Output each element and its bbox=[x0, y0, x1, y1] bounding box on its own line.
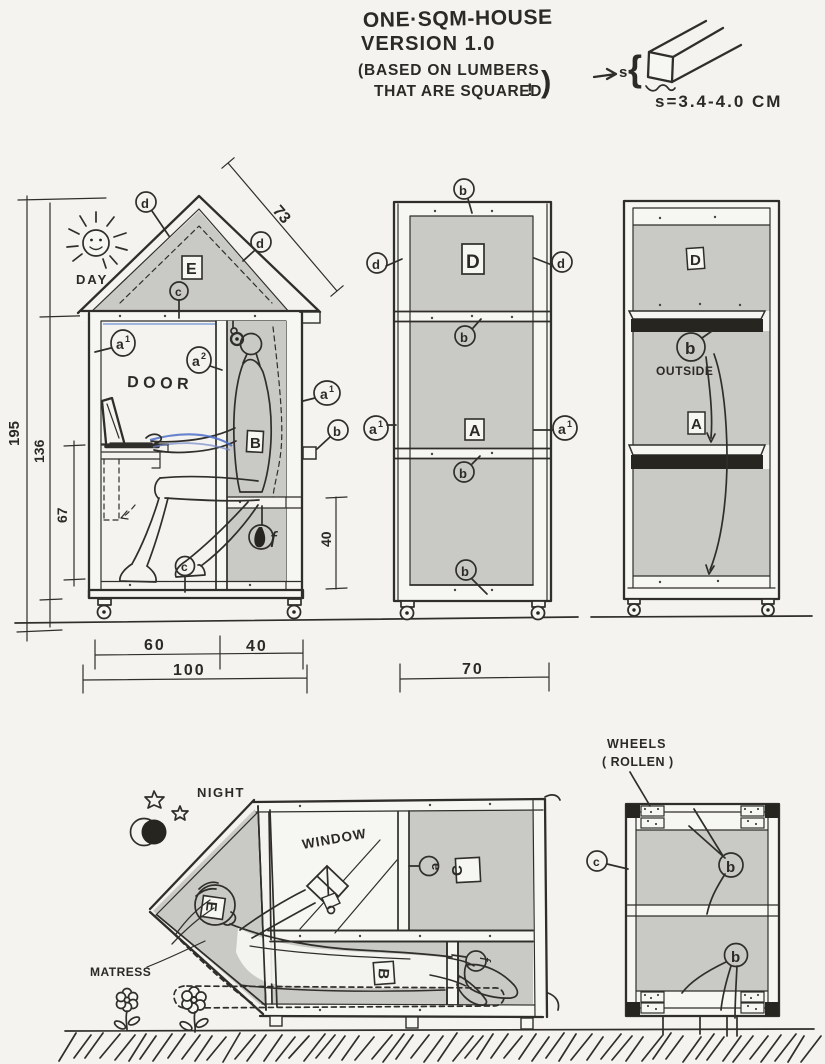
svg-text:c: c bbox=[175, 285, 182, 299]
svg-text:1: 1 bbox=[329, 384, 334, 394]
svg-text:a: a bbox=[320, 386, 328, 402]
svg-text:1: 1 bbox=[125, 334, 130, 344]
svg-text:s: s bbox=[619, 64, 627, 81]
svg-text:{: { bbox=[628, 48, 642, 89]
svg-text:e: e bbox=[429, 863, 444, 870]
svg-text:100: 100 bbox=[173, 662, 206, 679]
svg-text:( ROLLEN ): ( ROLLEN ) bbox=[602, 755, 674, 769]
svg-text:B: B bbox=[250, 435, 261, 452]
svg-text:a: a bbox=[369, 421, 377, 437]
svg-text:C: C bbox=[449, 865, 466, 876]
svg-text:!: ! bbox=[527, 80, 533, 99]
svg-text:a: a bbox=[192, 353, 200, 369]
svg-text:D: D bbox=[690, 252, 701, 269]
svg-text:VERSION 1.0: VERSION 1.0 bbox=[361, 33, 495, 55]
svg-text:A: A bbox=[469, 423, 481, 440]
svg-text:E: E bbox=[186, 261, 197, 278]
svg-text:60: 60 bbox=[144, 637, 166, 654]
svg-text:d: d bbox=[557, 256, 565, 271]
svg-text:d: d bbox=[141, 196, 149, 211]
svg-text:40: 40 bbox=[246, 638, 268, 655]
svg-text:D: D bbox=[466, 252, 480, 273]
svg-text:NIGHT: NIGHT bbox=[197, 785, 245, 800]
svg-text:70: 70 bbox=[462, 661, 484, 678]
svg-text:b: b bbox=[459, 466, 467, 481]
svg-text:2: 2 bbox=[201, 351, 206, 361]
svg-text:a: a bbox=[116, 336, 124, 352]
svg-text:136: 136 bbox=[31, 439, 47, 463]
svg-text:d: d bbox=[256, 236, 264, 251]
svg-text:1: 1 bbox=[567, 419, 572, 429]
svg-text:a: a bbox=[558, 421, 566, 437]
svg-text:WHEELS: WHEELS bbox=[607, 737, 666, 751]
svg-text:b: b bbox=[461, 564, 469, 579]
svg-text:DOOR: DOOR bbox=[127, 374, 194, 393]
svg-text:c: c bbox=[181, 560, 188, 574]
svg-text:b: b bbox=[726, 859, 735, 876]
svg-text:b: b bbox=[459, 183, 467, 198]
svg-text:67: 67 bbox=[54, 507, 70, 523]
svg-text:DAY: DAY bbox=[76, 272, 108, 287]
svg-text:(BASED ON LUMBERS: (BASED ON LUMBERS bbox=[358, 62, 540, 79]
svg-text:c: c bbox=[593, 855, 600, 869]
svg-text:b: b bbox=[333, 424, 341, 439]
svg-text:ONE·SQM-HOUSE: ONE·SQM-HOUSE bbox=[363, 6, 553, 32]
svg-text:d: d bbox=[372, 257, 380, 272]
svg-text:s=3.4-4.0 CM: s=3.4-4.0 CM bbox=[655, 92, 782, 111]
svg-text:1: 1 bbox=[378, 419, 383, 429]
svg-text:A: A bbox=[691, 416, 702, 433]
svg-text:b: b bbox=[685, 339, 695, 358]
svg-text:OUTSIDE: OUTSIDE bbox=[656, 364, 714, 378]
svg-text:MATRESS: MATRESS bbox=[90, 965, 151, 979]
svg-text:40: 40 bbox=[318, 531, 334, 547]
svg-text:b: b bbox=[731, 949, 740, 966]
svg-text:THAT ARE SQUARED: THAT ARE SQUARED bbox=[374, 83, 542, 100]
svg-text:b: b bbox=[460, 330, 468, 345]
svg-text:195: 195 bbox=[6, 421, 23, 446]
svg-text:): ) bbox=[541, 64, 551, 99]
svg-text:B: B bbox=[374, 968, 392, 980]
